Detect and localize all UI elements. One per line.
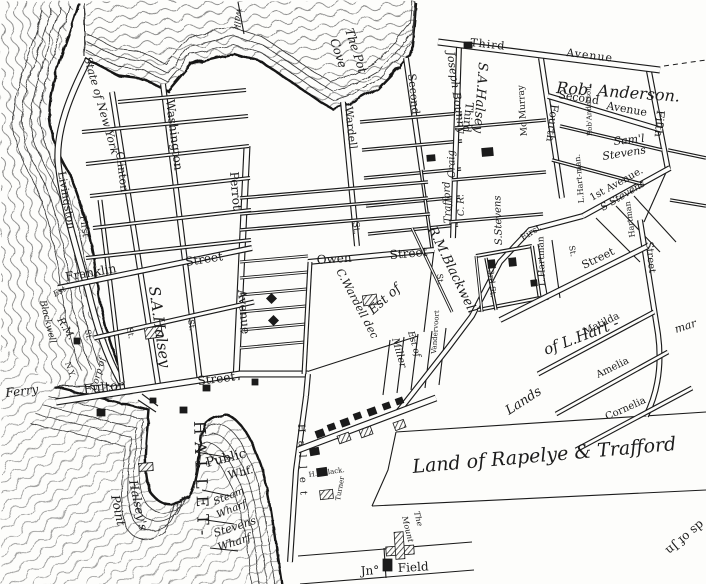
boundary-dashed-line — [664, 60, 706, 66]
label-the-mount-1: The — [412, 510, 424, 527]
road-surface — [240, 256, 308, 262]
owner-label-hartman-small: Hartman — [623, 201, 637, 238]
building-hatched — [320, 489, 334, 499]
building-hatched — [394, 532, 405, 560]
building-block — [74, 338, 80, 344]
street-label-fifth: Fifth — [652, 110, 667, 138]
building-hatched — [139, 463, 154, 472]
parcel-line — [372, 432, 396, 506]
building-hatched — [393, 419, 406, 430]
road-surface — [240, 182, 428, 198]
owner-label-craig: Craig — [446, 150, 458, 178]
parcel-line — [372, 490, 706, 506]
building-block — [267, 294, 277, 304]
street-label-franklin-street: Street — [184, 249, 224, 269]
street-label-st-5: St. — [435, 273, 445, 285]
parcel-line — [298, 542, 472, 556]
building-block — [327, 423, 336, 431]
building-block — [382, 402, 391, 410]
street-label-second: Second — [405, 73, 422, 115]
owner-label-vandervoort: Vandervoort — [430, 310, 441, 355]
water-pot-cove — [85, 0, 415, 108]
owner-label-l-hartman-west: L.Hartman — [536, 236, 548, 286]
road-surface — [94, 302, 254, 338]
historic-map-canvas: The Pot Cove walk Ferry Halsey's Point H… — [0, 0, 706, 584]
road-surface — [240, 342, 305, 348]
road-surface — [668, 150, 706, 158]
building-block — [482, 148, 494, 157]
building-block — [340, 418, 350, 427]
owner-label-joseph-bounny: Joseph Bounny — [444, 49, 469, 136]
label-mar-fragment: mar — [673, 316, 699, 335]
owner-label-mc-murray: Mc Murray — [516, 84, 530, 137]
building-block — [531, 280, 538, 287]
parcel-line — [383, 340, 390, 395]
owner-label-l-hartman-ne: L.Hart-man. — [573, 154, 586, 204]
owner-label-s-stevens-vert: S.Stevens — [492, 195, 505, 245]
building-block — [252, 379, 258, 385]
owner-label-field: Field — [397, 559, 429, 575]
owner-label-cr-trafford-2: Trafford — [442, 181, 454, 223]
street-label-cornelia: Cornelia — [604, 395, 648, 423]
street-label-st-2: St. — [125, 327, 136, 340]
building-block — [97, 409, 105, 416]
owner-label-est-of-miller-2: Miller — [389, 336, 409, 371]
road-surface — [240, 214, 430, 230]
owner-label-est-of-miller-1: Est of — [405, 329, 423, 360]
building-block — [367, 407, 377, 416]
building-block — [488, 260, 496, 269]
road-surface — [240, 198, 428, 214]
road-surface — [118, 90, 246, 102]
label-lands-of-jn-fragment: ds of Jn — [663, 518, 706, 558]
historic-map-page: The Pot Cove walk Ferry Halsey's Point H… — [0, 0, 706, 584]
building-block — [150, 398, 156, 403]
street-label-owen: Owen — [316, 251, 352, 267]
street-label-st-4: St. — [567, 245, 578, 258]
road-surface — [670, 200, 706, 206]
road-surface — [298, 398, 436, 450]
owner-label-jno: Jn° — [358, 563, 379, 578]
road-surface — [240, 272, 308, 278]
road-surface — [560, 126, 662, 150]
owner-label-cr-trafford-1: C. R. — [456, 194, 467, 216]
building-block — [383, 559, 392, 571]
road-surface — [93, 210, 251, 228]
building-block — [509, 258, 517, 267]
owner-label-lands: Lands — [502, 384, 545, 419]
road-surface — [306, 374, 308, 396]
street-label-owen-street: Street — [389, 245, 428, 262]
street-label-perrot: Perrot — [227, 171, 244, 210]
street-label-st-3: St. — [186, 319, 197, 332]
street-label-st-1: St. — [83, 329, 94, 342]
building-block — [309, 447, 319, 455]
road-surface — [452, 172, 546, 180]
owner-label-sa-halsey-east: S.A.Halsey — [470, 62, 490, 135]
building-block — [269, 316, 279, 326]
street-label-clinton: Clinton — [113, 151, 131, 193]
street-label-3rd-st: 3rd St. — [486, 269, 498, 298]
road-surface — [500, 246, 648, 320]
parcel-line — [300, 570, 474, 584]
street-label-fulton-street: Street — [197, 369, 236, 388]
road-surface — [362, 141, 462, 150]
owner-label-turner: Turner — [334, 475, 346, 501]
street-label-wardell-st: St. — [350, 221, 361, 235]
owner-label-saml-stevens-2: Stevens — [601, 143, 647, 163]
parcel-line — [396, 412, 706, 432]
building-block — [427, 155, 435, 162]
owner-label-land-of-rapelye-trafford: Land of Rapelye & Trafford — [411, 433, 678, 478]
building-block — [353, 412, 362, 420]
road-surface — [90, 178, 250, 196]
building-block — [180, 407, 187, 413]
